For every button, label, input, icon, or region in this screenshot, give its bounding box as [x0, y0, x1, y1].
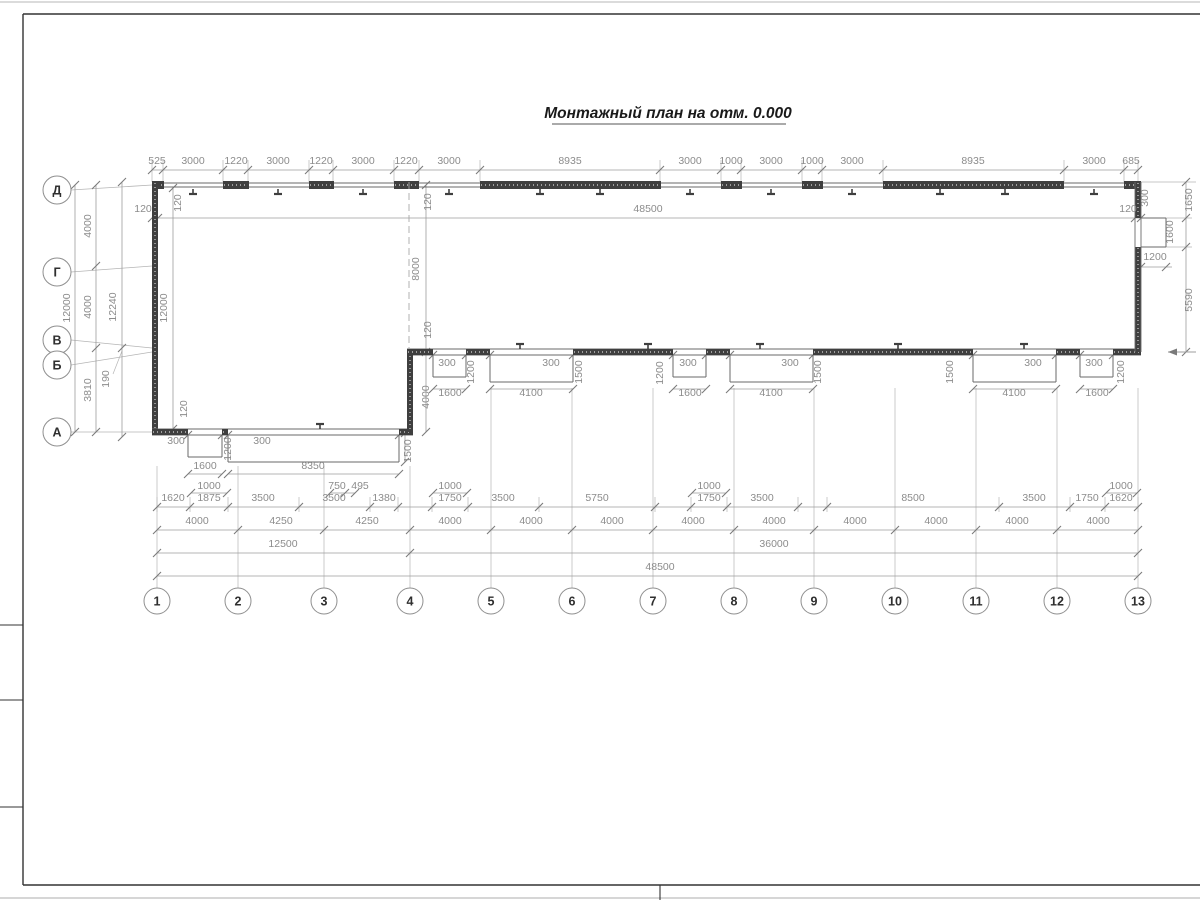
montage-plan-svg: Монтажный план на отм. 0.000 52530001220… — [0, 0, 1200, 900]
dim-label: 1000 — [800, 155, 824, 167]
dim-label: 300 — [679, 357, 697, 369]
dim-label: 4000 — [420, 385, 432, 409]
dim-label: 4100 — [1002, 387, 1026, 399]
dim-label: 4250 — [269, 515, 293, 527]
dim-label: 12000 — [61, 293, 73, 322]
dim-label: 120 — [134, 203, 152, 215]
column-axis-bubble-6-label: 6 — [569, 594, 576, 608]
wall-panel — [466, 349, 490, 355]
dim-label: 3500 — [750, 492, 774, 504]
dim-label: 1750 — [1075, 492, 1099, 504]
dim-label: 3500 — [251, 492, 275, 504]
sheet-frame — [0, 2, 1200, 900]
row-axis-leader — [71, 340, 152, 348]
dim-label: 4100 — [519, 387, 543, 399]
plan-title: Монтажный план на отм. 0.000 — [544, 105, 792, 122]
dim-label: 3000 — [678, 155, 702, 167]
dim-label: 3000 — [1082, 155, 1106, 167]
dim-label: 12500 — [268, 538, 297, 550]
dim-label: 8350 — [301, 460, 325, 472]
dim-label: 4000 — [1005, 515, 1029, 527]
dim-label: 120 — [422, 193, 434, 211]
dim-label: 3000 — [759, 155, 783, 167]
dim-label: 120 — [1119, 203, 1137, 215]
dim-label: 1200 — [654, 361, 666, 385]
dim-label: 4000 — [843, 515, 867, 527]
dim-label: 4000 — [82, 214, 94, 238]
dim-label: 4000 — [681, 515, 705, 527]
dim-label: 1220 — [309, 155, 333, 167]
dim-label: 300 — [167, 435, 185, 447]
drawing-sheet: Монтажный план на отм. 0.000 52530001220… — [0, 0, 1200, 900]
dim-label: 3000 — [351, 155, 375, 167]
walls — [152, 181, 1166, 462]
dim-label: 525 — [148, 155, 166, 167]
dim-label: 1500 — [402, 439, 414, 463]
dim-label: 4000 — [600, 515, 624, 527]
dim-label: 1500 — [573, 360, 585, 384]
dim-label: 1500 — [812, 360, 824, 384]
dim-label: 1875 — [197, 492, 221, 504]
column-axis-bubble-1-label: 1 — [154, 594, 161, 608]
dim-label: 1220 — [224, 155, 248, 167]
dim-label: 4000 — [924, 515, 948, 527]
dim-label: 1650 — [1183, 188, 1195, 212]
dim-label: 3000 — [266, 155, 290, 167]
dim-label: 300 — [542, 357, 560, 369]
row-axis-leader — [71, 185, 152, 190]
dim-label: 1200 — [465, 360, 477, 384]
dim-label: 495 — [351, 480, 369, 492]
dim-label: 120 — [422, 321, 434, 339]
dim-label: 3500 — [491, 492, 515, 504]
dim-label: 4000 — [438, 515, 462, 527]
dim-label: 12000 — [158, 293, 170, 322]
dim-label: 5750 — [585, 492, 609, 504]
dim-label: 4000 — [1086, 515, 1110, 527]
dim-label: 36000 — [759, 538, 788, 550]
dim-label: 1000 — [1109, 480, 1133, 492]
dim-label: 1600 — [1085, 387, 1109, 399]
dim-label: 1750 — [438, 492, 462, 504]
dim-label: 3500 — [322, 492, 346, 504]
axis-bubbles: ДГВБА12345678910111213 — [43, 176, 1151, 614]
dim-label: 1200 — [1115, 360, 1127, 384]
row-axis-bubble-Г-label: Г — [53, 265, 60, 279]
column-axis-bubble-3-label: 3 — [321, 594, 328, 608]
column-axis-bubble-13-label: 13 — [1131, 594, 1145, 608]
dim-label: 300 — [1024, 357, 1042, 369]
dim-label: 120 — [178, 400, 190, 418]
dim-label: 4100 — [759, 387, 783, 399]
dim-label: 685 — [1122, 155, 1140, 167]
dim-label: 300 — [438, 357, 456, 369]
column-axis-bubble-9-label: 9 — [811, 594, 818, 608]
dim-label: 1380 — [372, 492, 396, 504]
row-axis-bubble-Б-label: Б — [53, 358, 62, 372]
column-axis-bubble-4-label: 4 — [407, 594, 414, 608]
wall-panel — [222, 429, 228, 435]
leader-190 — [113, 351, 122, 374]
dim-label: 1500 — [944, 360, 956, 384]
dim-label: 8000 — [410, 257, 422, 281]
dim-label: 1000 — [438, 480, 462, 492]
dim-label: 3000 — [437, 155, 461, 167]
dim-label: 750 — [328, 480, 346, 492]
column-axis-bubble-2-label: 2 — [235, 594, 242, 608]
row-axis-bubble-В-label: В — [52, 333, 61, 347]
dim-label: 1000 — [719, 155, 743, 167]
dim-label: 300 — [1139, 189, 1151, 207]
dim-label: 3000 — [840, 155, 864, 167]
dim-label: 8935 — [961, 155, 985, 167]
dim-label: 190 — [100, 370, 112, 388]
column-axis-bubble-10-label: 10 — [888, 594, 902, 608]
dim-label: 1620 — [161, 492, 185, 504]
dim-label: 1600 — [193, 460, 217, 472]
dim-arrow — [1168, 349, 1177, 356]
dim-label: 4250 — [355, 515, 379, 527]
dim-label: 8500 — [901, 492, 925, 504]
dim-label: 4000 — [762, 515, 786, 527]
dim-label: 1750 — [697, 492, 721, 504]
dim-label: 1620 — [1109, 492, 1133, 504]
dim-label: 1000 — [197, 480, 221, 492]
row-axis-bubble-А-label: А — [52, 425, 61, 439]
dim-label: 1600 — [1164, 220, 1176, 244]
wall-panel — [813, 349, 973, 355]
dim-label: 3500 — [1022, 492, 1046, 504]
dim-label: 5590 — [1183, 288, 1195, 312]
row-axis-leader — [71, 266, 152, 272]
dim-label: 300 — [253, 435, 271, 447]
dim-label: 4000 — [82, 295, 94, 319]
dim-label: 1200 — [1143, 251, 1167, 263]
column-axis-bubble-5-label: 5 — [488, 594, 495, 608]
dim-label: 1000 — [697, 480, 721, 492]
wall-panel — [706, 349, 730, 355]
dim-label: 300 — [1085, 357, 1103, 369]
row-axis-leader — [71, 352, 152, 365]
dim-label: 4000 — [519, 515, 543, 527]
dim-label: 1200 — [222, 437, 234, 461]
column-axis-bubble-12-label: 12 — [1050, 594, 1064, 608]
dim-label: 12240 — [107, 292, 119, 321]
row-axis-bubble-Д-label: Д — [53, 183, 62, 197]
dim-label: 300 — [781, 357, 799, 369]
column-axis-bubble-7-label: 7 — [650, 594, 657, 608]
dim-label: 8935 — [558, 155, 582, 167]
dim-label: 4000 — [185, 515, 209, 527]
dim-label: 1600 — [678, 387, 702, 399]
dim-label: 48500 — [633, 203, 662, 215]
dim-label: 1600 — [438, 387, 462, 399]
dim-label: 1220 — [394, 155, 418, 167]
dim-label: 120 — [172, 194, 184, 212]
column-axis-bubble-8-label: 8 — [731, 594, 738, 608]
column-axis-bubble-11-label: 11 — [969, 594, 982, 608]
dim-label: 3000 — [181, 155, 205, 167]
wall-panel — [1056, 349, 1080, 355]
dim-label: 3810 — [82, 378, 94, 402]
dim-label: 48500 — [645, 561, 674, 573]
